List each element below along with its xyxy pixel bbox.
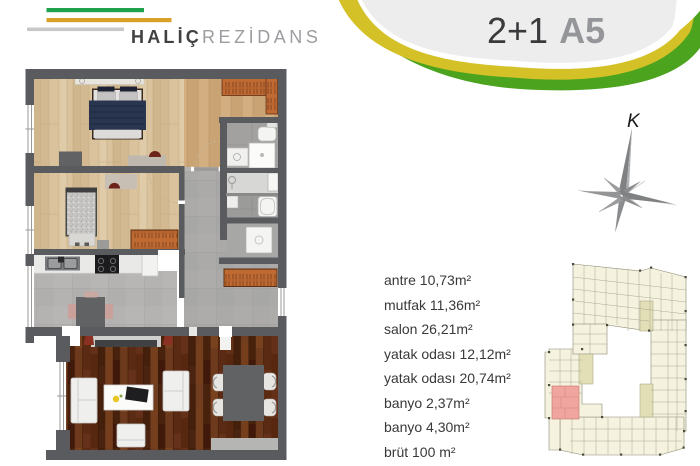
- svg-text:K: K: [627, 111, 641, 132]
